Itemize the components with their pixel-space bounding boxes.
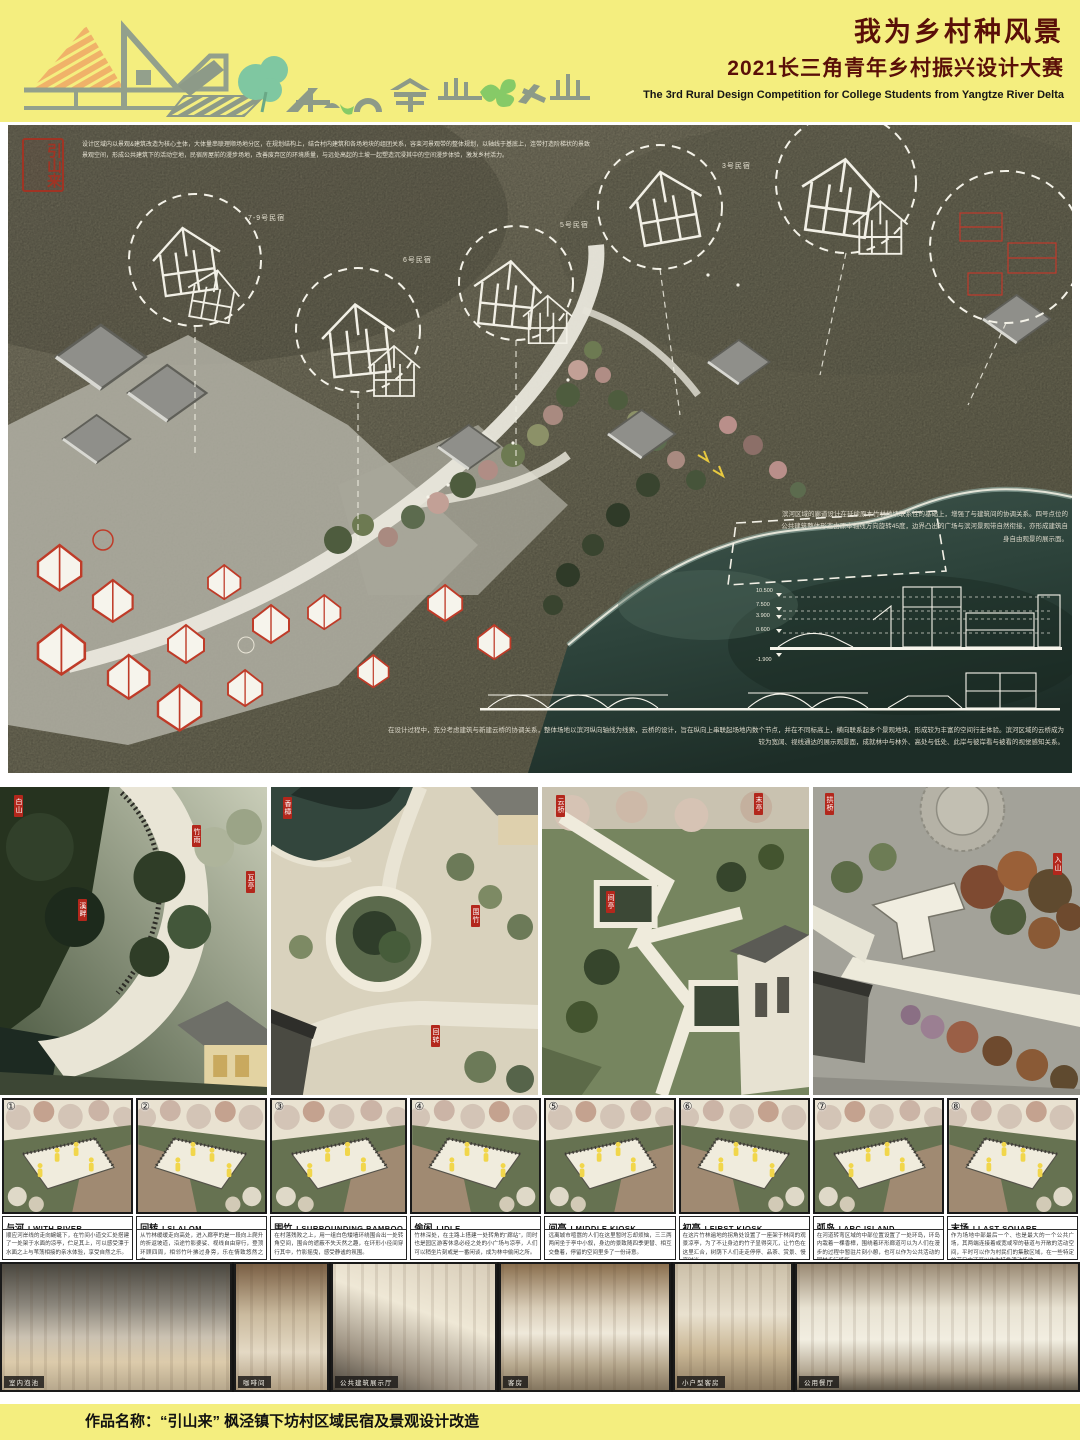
scene-tag: 入山 (1053, 853, 1062, 875)
diagram-number: ① (6, 1100, 16, 1113)
header-banner: 我为乡村种风景 2021长三角青年乡村振兴设计大赛 The 3rd Rural … (0, 0, 1080, 122)
diagram-last-square: ⑧ 末场I LAST SQUARE 作为场地中部最后一个、也是最大的一个公共广场… (947, 1098, 1078, 1262)
diagram-slalom: ② 回转I SLALOM 从竹林缓缓走向高处，进入廊亭的是一段向上爬升的折返坡道… (136, 1098, 267, 1262)
diagram-title: 末场I LAST SQUARE (948, 1217, 1077, 1230)
callout-label-5: 5号民宿 (560, 220, 589, 230)
diagram-with-river: ① 与河I WITH RIVER 顺应河岸线的走向蜿蜒下，在竹间小道交汇处搭建了… (2, 1098, 133, 1262)
diagram-number: ④ (414, 1100, 424, 1113)
concept-diagram-strip: ① 与河I WITH RIVER 顺应河岸线的走向蜿蜒下，在竹间小道交汇处搭建了… (2, 1098, 1078, 1262)
diagram-number: ⑦ (817, 1100, 827, 1113)
scene-tag: 拱桥 (825, 793, 834, 815)
scene-tag: 间亭 (606, 891, 615, 913)
level-label: 0.600 (756, 627, 770, 633)
footer-banner: 作品名称：“引山来” 枫泾镇下坊村区域民宿及景观设计改造 (0, 1404, 1080, 1440)
callout-label-3: 3号民宿 (722, 161, 751, 171)
diagram-title: 偷闲I IDLE (411, 1217, 540, 1230)
diagram-description: 顺应河岸线的走向蜿蜒下，在竹间小道交汇处搭建了一处架于水面的凉亭，伫足其上，可以… (3, 1230, 132, 1259)
diagram-description: 作为场地中部最后一个、也是最大的一个公共广场，其两端连接着或宽或窄的巷道与开敞的… (948, 1230, 1077, 1260)
scene-tag: 香樟 (283, 797, 292, 819)
diagram-description: 在村落残败之上，用一组白色矮墙环绕围合出一处转角空间，围合的遮蔽不失天然之趣，在… (271, 1230, 406, 1259)
diagram-middle-kiosk: ⑤ 间亭I MIDDLE KIOSK 远离城市喧嚣的人们在这里暂时忘却烦恼，三三… (544, 1098, 675, 1262)
scene-tag: 瓦亭 (246, 871, 255, 893)
photo-indoor-pool: 室内泡池 (0, 1262, 232, 1392)
level-label: 10.500 (756, 588, 773, 594)
logo-glyphs (286, 74, 590, 115)
diagram-description: 远离城市喧嚣的人们在这里暂时忘却烦恼，三三两两闲坐于亭中小叙，身边的景致随四季更… (545, 1230, 674, 1259)
photo-small-guest-room: 小户型客房 (673, 1262, 793, 1392)
photo-caption: 室内泡池 (4, 1376, 44, 1388)
photo-caption: 公共建筑展示厅 (335, 1376, 398, 1388)
poster-subtitle-en: The 3rd Rural Design Competition for Col… (643, 89, 1064, 101)
diagram-surrounding-bamboo: ③ 围竹I SURROUNDING BAMBOO 在村落残败之上，用一组白色矮墙… (270, 1098, 407, 1262)
diagram-description: 从竹林缓缓走向高处，进入廊亭的是一段向上爬升的折返坡道，沿途竹影婆娑、视线自由穿… (137, 1230, 266, 1260)
diagram-arc-island: ⑦ 弧岛I ARC ISLAND 在河道转弯区域的中部位置设置了一处环岛，环岛内… (813, 1098, 944, 1262)
perspective-renderings: 白山 竹雨 瓦亭 溪畔 香樟 (0, 787, 1080, 1095)
diagram-title: 与河I WITH RIVER (3, 1217, 132, 1230)
riverside-paragraph: 滨河区域的廊道设计在延续原本竹林地块联系性的基础上，增强了与建筑间的协调关系。四… (780, 509, 1068, 546)
photo-shared-dining: 公用餐厅 (795, 1262, 1080, 1392)
scene-tag: 溪畔 (78, 899, 87, 921)
diagram-title: 初亭I FIRST KIOSK (680, 1217, 809, 1230)
diagram-title: 间亭I MIDDLE KIOSK (545, 1217, 674, 1230)
diagram-number: ⑤ (548, 1100, 558, 1113)
level-label: 3.900 (756, 613, 770, 619)
masterplan-scene: 10.500 7.500 3.900 0.600 -1.900 (8, 125, 1072, 773)
poster-subtitle: 2021长三角青年乡村振兴设计大赛 (643, 52, 1064, 82)
project-seal: 引山来 (22, 138, 64, 192)
project-name: 作品名称：“引山来” 枫泾镇下坊村区域民宿及景观设计改造 (85, 1404, 479, 1440)
poster-title: 我为乡村种风景 (643, 10, 1064, 49)
diagram-first-kiosk: ⑥ 初亭I FIRST KIOSK 在这片竹林遍地的拐角处设置了一座架于林间的观… (679, 1098, 810, 1262)
photo-caption: 公用餐厅 (799, 1376, 839, 1388)
competition-poster: 我为乡村种风景 2021长三角青年乡村振兴设计大赛 The 3rd Rural … (0, 0, 1080, 1440)
level-label: -1.900 (756, 657, 772, 663)
perspective-kiosks: 云桥 末亭 间亭 (542, 787, 809, 1095)
logo-graphic (18, 4, 593, 118)
scene-tag: 云桥 (556, 795, 565, 817)
diagram-number: ⑥ (683, 1100, 693, 1113)
diagram-title: 围竹I SURROUNDING BAMBOO (271, 1217, 406, 1230)
scene-tag: 末亭 (754, 793, 763, 815)
interior-photos-strip: 室内泡池 咖啡间 公共建筑展示厅 客房 小户型客房 公用餐厅 (0, 1262, 1080, 1392)
perspective-arc-island: 拱桥 入山 (813, 787, 1080, 1095)
diagram-title: 回转I SLALOM (137, 1217, 266, 1230)
cloud-bridge-paragraph: 在设计过程中，充分考虑建筑与新建云桥的协调关系，整体场地以滨河纵向轴线为线索，云… (386, 725, 1064, 750)
callout-label-7-9: 7-9号民宿 (248, 213, 285, 223)
diagram-title: 弧岛I ARC ISLAND (814, 1217, 943, 1230)
photo-caption: 咖啡间 (238, 1376, 271, 1388)
photo-caption: 小户型客房 (677, 1376, 725, 1388)
diagram-idle: ④ 偷闲I IDLE 竹林深处，在主路上搭建一处转角的“廊站”，同时也是园区游客… (410, 1098, 541, 1262)
masterplan-intro-text: 设计区域内以景观&建筑改造为核心主体，大体量串联理顺场地分区，在规划结构上，结合… (82, 140, 590, 162)
level-label: 7.500 (756, 602, 770, 608)
perspective-surrounding-bamboo: 香樟 围竹 回转 (271, 787, 538, 1095)
perspective-with-river: 白山 竹雨 瓦亭 溪畔 (0, 787, 267, 1095)
scene-tag: 回转 (431, 1025, 440, 1047)
masterplan-rendering: 10.500 7.500 3.900 0.600 -1.900 (8, 125, 1072, 773)
callout-label-6: 6号民宿 (403, 255, 432, 265)
photo-guest-room: 客房 (499, 1262, 671, 1392)
diagram-number: ③ (274, 1100, 284, 1113)
scene-tag: 围竹 (471, 905, 480, 927)
photo-coffee-room: 咖啡间 (234, 1262, 329, 1392)
photo-caption: 客房 (503, 1376, 528, 1388)
diagram-description: 在这片竹林遍地的拐角处设置了一座架于林间的观景凉亭，为了不让身边的竹子显得突兀，… (680, 1230, 809, 1260)
diagram-description: 在河道转弯区域的中部位置设置了一处环岛，环岛内栽着一棵香樟，围绕着环形廊道可以为… (814, 1230, 943, 1260)
scene-tag: 白山 (14, 795, 23, 817)
diagram-number: ② (140, 1100, 150, 1113)
competition-logo (18, 4, 593, 118)
diagram-number: ⑧ (951, 1100, 961, 1113)
scene-tag: 竹雨 (192, 825, 201, 847)
diagram-description: 竹林深处，在主路上搭建一处转角的“廊站”，同时也是园区游客休息必经之处的小广场与… (411, 1230, 540, 1259)
photo-public-hall: 公共建筑展示厅 (331, 1262, 497, 1392)
